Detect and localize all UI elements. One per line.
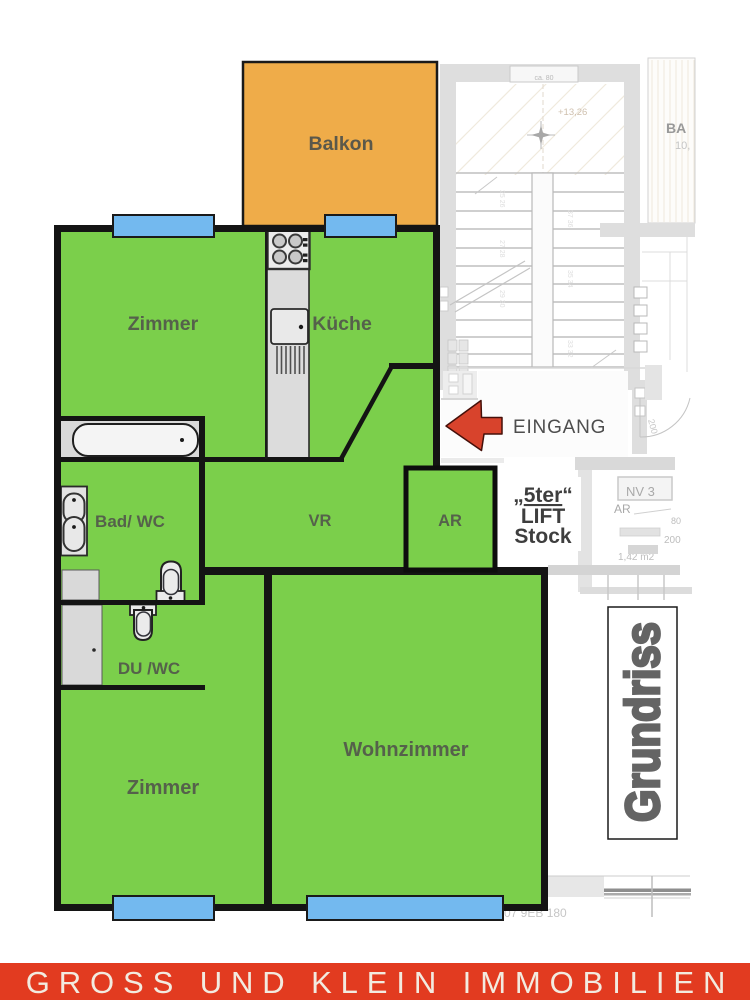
svg-text:Bad/ WC: Bad/ WC — [95, 512, 165, 531]
svg-text:Grundriss: Grundriss — [617, 622, 670, 822]
svg-text:200: 200 — [664, 535, 681, 546]
svg-text:AR: AR — [438, 512, 462, 530]
svg-text:Balkon: Balkon — [308, 133, 373, 155]
svg-text:25 26: 25 26 — [498, 190, 505, 208]
svg-text:„5ter“: „5ter“ — [513, 484, 573, 507]
svg-text:33 32: 33 32 — [566, 340, 573, 358]
svg-text:EINGANG: EINGANG — [513, 417, 606, 438]
svg-text:Stock: Stock — [514, 525, 572, 548]
svg-text:+13,26: +13,26 — [558, 107, 587, 118]
svg-text:ca. 80: ca. 80 — [534, 75, 553, 82]
svg-text:Küche: Küche — [312, 313, 372, 335]
svg-text:29 30: 29 30 — [498, 290, 505, 308]
svg-text:BA: BA — [666, 120, 686, 136]
svg-text:27 28: 27 28 — [498, 240, 505, 258]
svg-text:80: 80 — [671, 516, 681, 526]
svg-text:10,: 10, — [675, 140, 690, 152]
svg-text:AR: AR — [614, 502, 631, 516]
svg-text:37 36: 37 36 — [566, 210, 573, 228]
svg-text:Wohnzimmer: Wohnzimmer — [343, 739, 468, 761]
svg-text:Zimmer: Zimmer — [128, 313, 199, 335]
svg-text:GROSS UND KLEIN IMMOBILIEN: GROSS UND KLEIN IMMOBILIEN — [26, 965, 735, 1000]
svg-text:DU /WC: DU /WC — [118, 659, 180, 678]
svg-text:VR: VR — [309, 512, 332, 530]
svg-text:NV 3: NV 3 — [626, 484, 655, 499]
svg-text:Zimmer: Zimmer — [127, 777, 199, 799]
svg-text:35 34: 35 34 — [566, 270, 573, 288]
